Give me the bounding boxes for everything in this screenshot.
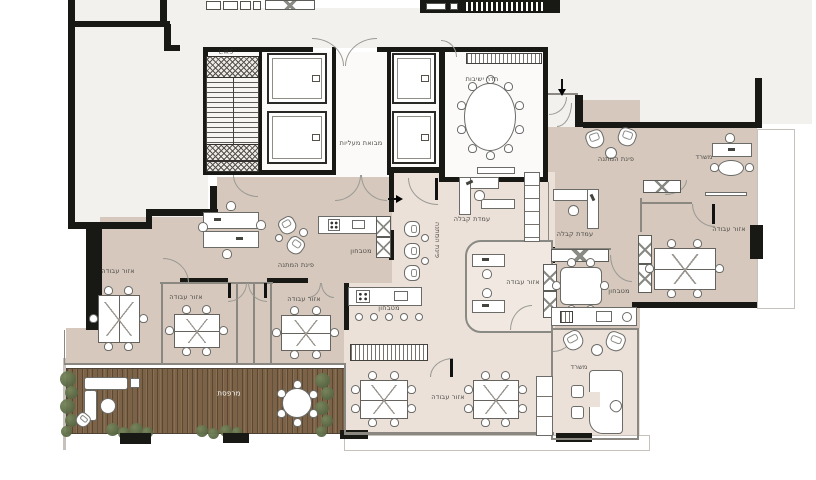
chair (290, 350, 299, 359)
floor-plan: חדר ישיבות מבואת מעליות פינת המתנה משרד … (0, 0, 816, 480)
room-label-waiting-reception: פינת המתנה (434, 222, 441, 258)
chair (165, 326, 174, 335)
stove (356, 290, 370, 303)
plant (65, 386, 78, 399)
entry-arrow (396, 195, 403, 203)
chair (219, 326, 228, 335)
guest-chair (571, 385, 584, 398)
dining-table (560, 267, 602, 305)
chair (504, 144, 513, 153)
wall (259, 52, 262, 170)
door-leaf (228, 283, 231, 298)
room-label-kitchenette-bar: מטבחון (378, 305, 399, 312)
monitor (482, 304, 489, 307)
closet (643, 180, 681, 193)
desk-notch (589, 392, 600, 407)
chair (104, 342, 113, 351)
room-label-kitchenette-e: מטבחון (608, 288, 629, 295)
chair (567, 258, 576, 267)
hob (622, 312, 632, 322)
wall (575, 95, 583, 127)
wall (755, 78, 762, 128)
partition (161, 283, 163, 365)
room-label-reception-1: עמדת קבלה (454, 216, 490, 223)
chair (645, 264, 654, 273)
chair (407, 404, 416, 413)
chair (368, 371, 377, 380)
sink (394, 291, 408, 301)
bench-desk (203, 231, 259, 248)
shape (312, 75, 320, 82)
shell-space-northwest (70, 0, 208, 226)
reception-return (481, 199, 515, 209)
partition (642, 202, 692, 204)
chair (182, 347, 191, 356)
chair (693, 289, 702, 298)
door-leaf (450, 359, 453, 377)
task-chair (482, 269, 492, 279)
terrace-coffee-table (100, 398, 116, 414)
wall (632, 302, 757, 308)
chair (468, 144, 477, 153)
desk-cluster (90, 287, 148, 351)
cabinet-column (524, 172, 540, 242)
room-label-meeting-room: חדר ישיבות (466, 76, 499, 83)
cabinet-row (551, 249, 609, 262)
wall (443, 47, 548, 52)
chair (182, 305, 191, 314)
cluster-desk (473, 380, 519, 419)
chair (504, 82, 513, 91)
monitor (214, 218, 221, 221)
chair (277, 389, 286, 398)
chair (202, 305, 211, 314)
terrace-dining-table (282, 388, 312, 418)
task-chair (474, 190, 485, 201)
chair (501, 371, 510, 380)
chair (312, 306, 321, 315)
partition (637, 328, 639, 440)
room-label-work-center: אזור עבודה (287, 296, 321, 303)
chair (277, 409, 286, 418)
wall-column (750, 225, 763, 259)
chair (464, 385, 473, 394)
room-label-work-south: אזור עבודה (431, 394, 465, 401)
room-label-reception-2: עמדת קבלה (557, 231, 593, 238)
side-table (421, 257, 429, 265)
door-leaf (264, 283, 267, 298)
chair (468, 82, 477, 91)
bar-stool (370, 313, 378, 321)
wall (160, 0, 167, 27)
shaft-box (206, 1, 221, 10)
chair (667, 239, 676, 248)
chair (256, 220, 266, 230)
chair (518, 385, 527, 394)
side-table (275, 234, 283, 242)
shaft-box (253, 1, 261, 10)
plant (61, 426, 72, 437)
partition (551, 438, 639, 440)
dishwasher (560, 311, 573, 323)
chair (745, 163, 754, 172)
partition (344, 363, 346, 435)
wall (332, 47, 336, 175)
chair (309, 390, 318, 399)
plant (196, 425, 208, 437)
wall (164, 45, 180, 51)
stair-base (206, 161, 259, 172)
shaft-box (240, 1, 251, 10)
task-chair (568, 205, 579, 216)
elevator-car (392, 111, 436, 164)
chair (552, 281, 561, 290)
room-label-terrace: מרפסת (217, 391, 240, 398)
bar-stool (355, 313, 363, 321)
shape (421, 75, 429, 82)
partition (270, 283, 272, 365)
wardrobe (536, 376, 553, 436)
chair (501, 418, 510, 427)
chair (518, 404, 527, 413)
wall (387, 167, 443, 173)
locker-bench (350, 344, 428, 361)
door-leaf (712, 204, 715, 224)
room-label-stairwell: L.W.S (219, 51, 234, 56)
room-label-kitchenette-n: מטבחון (350, 248, 371, 255)
cluster-desk (654, 248, 716, 290)
chair (124, 342, 133, 351)
shell-strip-meeting (443, 13, 548, 48)
fridge-cabinet (376, 237, 391, 258)
wall (210, 186, 217, 214)
desk-cluster (352, 372, 416, 427)
chair (330, 328, 339, 337)
desk-cluster (273, 307, 339, 359)
side-table (421, 234, 429, 242)
coffee-table (591, 344, 603, 356)
wall (389, 172, 394, 212)
chair (198, 222, 208, 232)
plant (106, 423, 119, 436)
wall-south-center (344, 432, 554, 435)
side-table (299, 228, 308, 237)
fridge-cabinet (376, 216, 391, 237)
room-label-waiting-center: פינת המתנה (278, 262, 314, 269)
door-leaf (435, 178, 438, 200)
sink (352, 220, 365, 229)
chair (312, 350, 321, 359)
bar-stool (400, 313, 408, 321)
plant (316, 426, 327, 437)
chair (486, 151, 495, 160)
chair (89, 314, 98, 323)
balcony-strip-east (757, 129, 795, 309)
chair (457, 101, 466, 110)
planter (223, 433, 249, 443)
chair (481, 371, 490, 380)
shaft-box (450, 3, 458, 10)
glass-wall-south (64, 363, 345, 365)
chair (515, 101, 524, 110)
task-chair (725, 133, 735, 143)
plant (60, 399, 75, 414)
wall (543, 47, 548, 182)
shaft-box (426, 3, 446, 10)
chair (715, 264, 724, 273)
wall-shelf (705, 192, 747, 196)
wall (267, 278, 308, 283)
room-label-work-east: אזור עבודה (712, 226, 746, 233)
chair (457, 125, 466, 134)
bar-stool (385, 313, 393, 321)
chair (293, 380, 302, 389)
chair (390, 371, 399, 380)
room-label-waiting-east: פינת המתנה (598, 156, 634, 163)
chair (351, 404, 360, 413)
chair (368, 418, 377, 427)
monitor (482, 258, 489, 261)
room-label-office-ne: משרד (695, 154, 712, 161)
meeting-table-small (718, 160, 744, 176)
cluster-desk (360, 380, 408, 419)
chair (710, 163, 719, 172)
cluster-desk (98, 295, 140, 343)
chair (272, 328, 281, 337)
wall (75, 21, 170, 27)
plant (60, 371, 76, 387)
chair (667, 289, 676, 298)
chair (202, 347, 211, 356)
cluster-desk (174, 314, 220, 348)
chair (693, 239, 702, 248)
planter (120, 433, 151, 444)
room-label-work-mid: אזור עבודה (506, 279, 540, 286)
armchair (404, 265, 420, 281)
stair-landing-bottom (206, 144, 259, 161)
duct-shaft (265, 0, 315, 10)
glass-wall-west (64, 330, 65, 365)
room-label-office-se: משרד (570, 364, 587, 371)
chair (351, 385, 360, 394)
desk-cluster (166, 306, 228, 356)
chair (515, 125, 524, 134)
wall (68, 222, 152, 229)
bench-desk (203, 212, 259, 229)
sink (596, 311, 612, 322)
chair (104, 286, 113, 295)
room-label-elevator-lobby: מבואת מעליות (340, 140, 383, 147)
armchair (404, 243, 420, 259)
shape (421, 134, 429, 141)
conference-table (464, 83, 516, 151)
chair (139, 314, 148, 323)
wall (68, 0, 75, 228)
room-label-work-west: אזור עבודה (101, 268, 135, 275)
chair (464, 404, 473, 413)
chair (124, 286, 133, 295)
task-chair (482, 288, 492, 298)
stair-treads (206, 78, 259, 144)
wall (146, 209, 152, 229)
louver-vent (466, 2, 544, 11)
chair (481, 418, 490, 427)
room-label-work-southwest: אזור עבודה (169, 294, 203, 301)
chair (222, 249, 232, 259)
elevator-car (267, 111, 327, 164)
desk-cluster (465, 372, 527, 427)
desk-cluster (646, 240, 724, 298)
guest-chair (571, 406, 584, 419)
chair (226, 201, 236, 211)
plant (321, 387, 334, 400)
shaft-box (223, 1, 238, 10)
elevator-lobby-room (336, 52, 387, 177)
armchair (404, 221, 420, 237)
stove (328, 219, 340, 231)
sideboard (477, 167, 515, 174)
wall (439, 47, 445, 182)
chair (309, 409, 318, 418)
chair (290, 306, 299, 315)
chair (390, 418, 399, 427)
meeting-cabinet (466, 53, 542, 64)
shape (312, 134, 320, 141)
plant (315, 373, 330, 388)
terrace-sofa (84, 377, 128, 390)
elevator-car (392, 53, 436, 104)
wall (583, 122, 757, 128)
chair (586, 258, 595, 267)
stair-landing-top (206, 56, 259, 78)
cluster-desk (281, 315, 331, 351)
chair (293, 418, 302, 427)
monitor (236, 237, 243, 240)
wall (387, 47, 391, 175)
bar-stool (415, 313, 423, 321)
chair (407, 385, 416, 394)
plant (208, 428, 219, 439)
entry-arrow (558, 89, 566, 96)
terrace-side-table (130, 378, 140, 388)
monitor (728, 148, 735, 151)
